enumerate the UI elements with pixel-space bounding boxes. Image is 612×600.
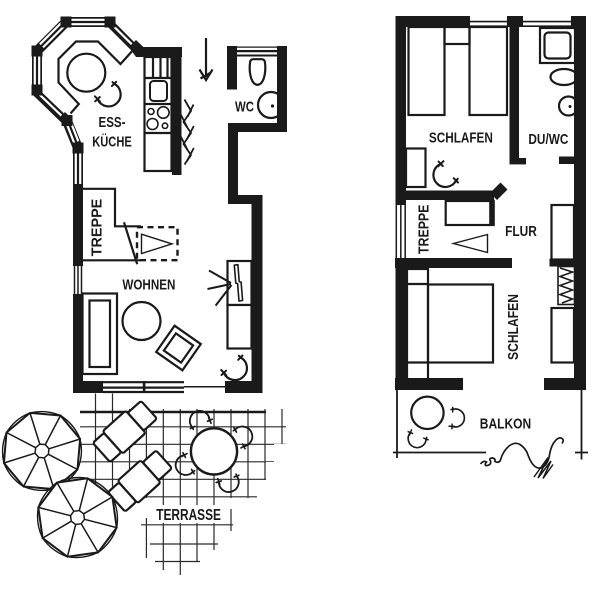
svg-text:DU/WC: DU/WC — [528, 131, 568, 148]
svg-text:SCHLAFEN: SCHLAFEN — [429, 130, 493, 147]
svg-text:TERRASSE: TERRASSE — [156, 507, 221, 524]
svg-text:FLUR: FLUR — [505, 223, 537, 240]
svg-text:BALKON: BALKON — [480, 416, 531, 433]
svg-text:WOHNEN: WOHNEN — [122, 277, 175, 294]
svg-text:KÜCHE: KÜCHE — [92, 133, 132, 150]
svg-text:TREPPE: TREPPE — [89, 199, 106, 257]
svg-text:TREPPE: TREPPE — [416, 205, 433, 254]
svg-text:WC: WC — [235, 99, 254, 116]
svg-text:SCHLAFEN: SCHLAFEN — [505, 294, 522, 360]
svg-text:ESS-: ESS- — [99, 114, 126, 131]
